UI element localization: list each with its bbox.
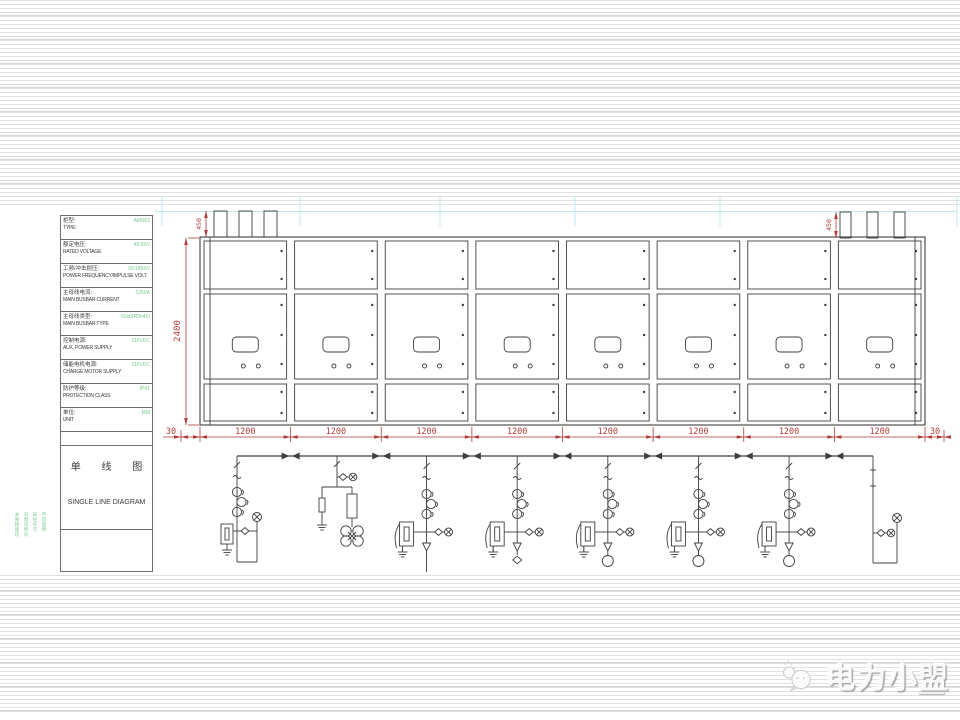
svg-text:1200: 1200: [326, 427, 346, 437]
spec-row-7: 防护等级:IP41PROTECTION CLASS: [61, 384, 152, 408]
spec-label-en: MAIN BUSBAR CURRENT: [63, 297, 150, 304]
spec-label-zh: 主母线类型:: [63, 314, 92, 321]
construction-guides: [155, 197, 957, 226]
svg-text:2400: 2400: [173, 320, 183, 342]
spec-label-en: PROTECTION CLASS: [63, 393, 150, 400]
svg-text:1200: 1200: [416, 427, 436, 437]
confidential-note-line: 归我司所有: [24, 512, 29, 570]
svg-text:450: 450: [195, 218, 203, 230]
spec-value: IP41: [140, 386, 150, 393]
spec-row-1: 额定电压:40.5KVRATED VOLTAGE: [61, 240, 152, 264]
spec-row-2: 工频/冲击耐压:95/185KVPOWER FREQUENCY/IMPULSE …: [61, 264, 152, 288]
spec-label-zh: 额定电压:: [63, 242, 87, 249]
spec-value: 60x6(R5h45): [121, 314, 150, 321]
spec-label-zh: 柜型:: [63, 218, 76, 225]
svg-text:1200: 1200: [598, 427, 618, 437]
single-line-diagram: [221, 453, 902, 573]
spec-value: 95/185KV: [128, 266, 150, 273]
spec-label-zh: 主母线电流:: [63, 290, 92, 297]
svg-text:1200: 1200: [235, 427, 255, 437]
spec-value: 40.5KV: [134, 242, 150, 249]
spec-label-en: AUX. POWER SUPPLY: [63, 345, 150, 352]
svg-text:30: 30: [930, 427, 940, 437]
spec-row-5: 控制电源:110VDCAUX. POWER SUPPLY: [61, 336, 152, 360]
spec-row-3: 主母线电流:1250AMAIN BUSBAR CURRENT: [61, 288, 152, 312]
watermark: 电力小盟: [780, 652, 950, 700]
spec-value: 110VDC: [131, 338, 150, 345]
spec-label-en: POWER FREQUENCY/IMPULSE VOLT.: [63, 273, 150, 280]
spec-label-zh: 单位:: [63, 410, 76, 417]
spec-label-en: CHARGE MOTOR SUPPLY: [63, 369, 150, 376]
cabinet-elevation: [200, 211, 925, 425]
spec-row-8: 单位:MMUNIT: [61, 408, 152, 432]
spec-value: 1250A: [136, 290, 150, 297]
spec-value: AMS63: [134, 218, 150, 225]
spec-row-4: 主母线类型:60x6(R5h45)MAIN BUSBAR TYPE: [61, 312, 152, 336]
chat-bubbles-icon: [780, 653, 818, 699]
svg-text:1200: 1200: [688, 427, 708, 437]
confidential-note-line: 不得复制: [42, 512, 47, 570]
spec-label-en: TYPE:: [63, 225, 150, 232]
spec-label-en: UNIT: [63, 417, 150, 424]
confidential-note: 本图样版权归我司所有未经许可不得复制: [15, 512, 47, 570]
spec-row-0: 柜型:AMS63TYPE:: [61, 216, 152, 240]
spec-label-en: MAIN BUSBAR TYPE: [63, 321, 150, 328]
svg-text:1200: 1200: [507, 427, 527, 437]
spec-label-zh: 控制电源:: [63, 338, 87, 345]
drawing-title-en: SINGLE LINE DIAGRAM: [60, 499, 153, 506]
spec-row-6: 储能电机电源:110VDCCHARGE MOTOR SUPPLY: [61, 360, 152, 384]
dimensions: 2400450450301200120012001200120012001200…: [163, 211, 951, 442]
spec-label-zh: 防护等级:: [63, 386, 87, 393]
confidential-note-line: 本图样版权: [15, 512, 20, 570]
drawing-title-zh: 单 线 图: [60, 458, 153, 473]
svg-text:30: 30: [166, 427, 176, 437]
drawing-title-block: 单 线 图 SINGLE LINE DIAGRAM: [60, 445, 153, 530]
svg-text:1200: 1200: [779, 427, 799, 437]
watermark-underline: [918, 692, 944, 694]
spec-table-rows: 柜型:AMS63TYPE:额定电压:40.5KVRATED VOLTAGE工频/…: [61, 216, 152, 432]
spec-value: 110VDC: [131, 362, 150, 369]
spec-label-zh: 工频/冲击耐压:: [63, 266, 99, 273]
svg-text:1200: 1200: [869, 427, 889, 437]
watermark-text: 电力小盟: [826, 655, 950, 697]
spec-value: MM: [142, 410, 150, 417]
spec-label-zh: 储能电机电源:: [63, 362, 98, 369]
confidential-note-line: 未经许可: [33, 512, 38, 570]
svg-text:450: 450: [825, 219, 833, 231]
spec-label-en: RATED VOLTAGE: [63, 249, 150, 256]
